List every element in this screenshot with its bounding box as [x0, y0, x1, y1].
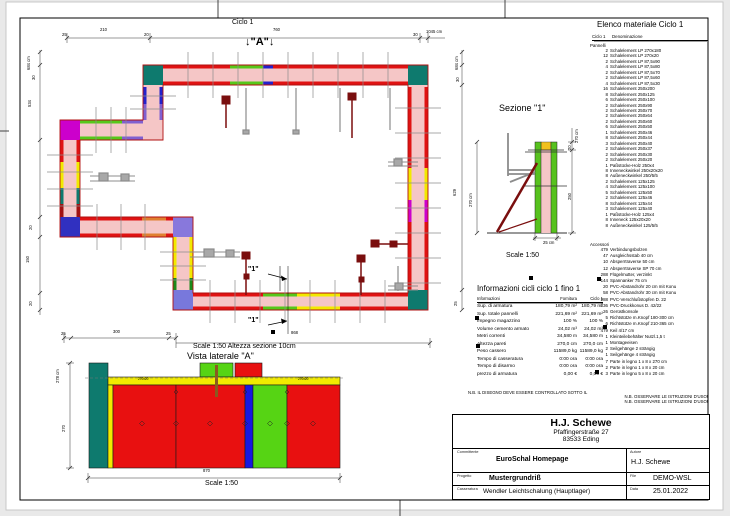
- field-label-formwork: Casseratura: [457, 487, 478, 491]
- info-row: Impegno magazzino100 %100 %: [477, 318, 603, 326]
- dim-label: 534: [28, 100, 32, 107]
- title-block-company: H.J. Schewe Pfaffingerstraße 27 83533 Ed…: [453, 415, 709, 449]
- dim-label: 868: [291, 331, 298, 335]
- field-label-project: Progetto: [457, 474, 471, 478]
- info-row: Peso cassero11589,0 kg11589,0 kg: [477, 348, 603, 356]
- section-scale: Scale 1:50: [506, 252, 539, 259]
- section-marker-a: ↓"A"↓: [245, 37, 274, 49]
- field-value-file: DEMO-WSL: [653, 475, 692, 482]
- dim-label: 20: [568, 145, 572, 150]
- dim-label: 30: [32, 75, 36, 80]
- info-row: prezzo di armatura0,00 €0,00 €: [477, 371, 603, 379]
- dim-label: 278 cm: [56, 369, 60, 383]
- company-address-street: Pfaffingerstraße 27: [453, 429, 709, 436]
- note-line: N.B. IL DISEGNO DEVE ESSERE CONTROLLATO …: [468, 390, 587, 395]
- cycle-info-table: Informazioni cicli ciclo 1 fino 1 Inform…: [477, 284, 603, 378]
- dim-label: 250: [568, 193, 572, 200]
- dim-label: 150: [26, 256, 30, 263]
- dim-label: 629: [453, 189, 457, 196]
- side-view-title: Vista laterale "A": [187, 352, 254, 361]
- dim-label: 684 cm: [27, 56, 31, 70]
- dim-label: 270 cm: [575, 129, 579, 143]
- info-row: Altezza pareti270,0 cm270,0 cm: [477, 341, 603, 349]
- dim-label: 25: [166, 332, 171, 336]
- dim-label: 25 cm: [543, 241, 554, 245]
- dim-label: 300: [113, 330, 120, 334]
- dim-label: 25: [62, 33, 67, 37]
- side-view-subtitle: Scale 1:50 Altezza sezione 10cm: [193, 343, 296, 350]
- dim-label: 30: [413, 33, 418, 37]
- field-value-formwork: Wendler Leichtschalung (Hauptlager): [483, 488, 590, 495]
- material-item: 8Außeneckwinkel 125/5/5: [592, 223, 708, 228]
- field-value-client: EuroSchal Homepage: [496, 456, 568, 463]
- field-value-date: 25.01.2022: [653, 488, 688, 495]
- note-line: N.B. OSSERVARE LE ISTRUZIONI D'USO!: [624, 399, 708, 404]
- info-row: Tempo di casseratura0:00 ora0:00 ora: [477, 356, 603, 364]
- material-list-title: Elenco materiale Ciclo 1: [597, 21, 683, 29]
- drawing-sheet: Ciclo 1 ↓"A"↓ "1" "1" 25 210 20 760 30 1…: [0, 0, 730, 516]
- dim-label: 210: [100, 28, 107, 32]
- panel-label: 270x20: [298, 378, 308, 381]
- info-row: Sup. di armatura180,79 m²180,79 m²: [477, 303, 603, 311]
- material-list: Ciclo 1Denominazione Pannelli 2Schalelem…: [592, 34, 708, 377]
- field-value-author: H.J. Schewe: [631, 459, 670, 466]
- material-item: 3Parte in legno 5 x 8 x 20 cm: [592, 371, 708, 377]
- dim-label: 684 cm: [455, 56, 459, 70]
- title-block: H.J. Schewe Pfaffingerstraße 27 83533 Ed…: [452, 414, 710, 500]
- side-view-scale: Scale 1:50: [205, 480, 238, 487]
- dim-label: 20: [144, 33, 149, 37]
- info-table-title: Informazioni cicli ciclo 1 fino 1: [477, 284, 603, 293]
- dim-label: 270: [62, 425, 66, 432]
- field-label-author: Autore: [630, 450, 641, 454]
- panel-label: 270x20: [138, 378, 148, 381]
- dim-label: 270 cm: [469, 193, 473, 207]
- company-name: H.J. Schewe: [453, 417, 709, 429]
- field-label-file: File: [630, 474, 636, 478]
- dim-label: 870: [203, 469, 210, 473]
- field-label-date: Data: [630, 487, 638, 491]
- section-marker-1-bottom: "1": [248, 317, 259, 324]
- info-row: Metri correnti34,580 m34,580 m: [477, 333, 603, 341]
- dim-label: 30: [456, 77, 460, 82]
- dim-label: 20: [29, 225, 33, 230]
- section-title: Sezione "1": [499, 104, 545, 113]
- company-address-city: 83533 Eding: [453, 436, 709, 443]
- dim-label: 25: [454, 301, 458, 306]
- dim-label: 20: [29, 301, 33, 306]
- plan-title: Ciclo 1: [232, 19, 253, 26]
- info-row: Volume cemento armato24,02 m³24,02 m³: [477, 326, 603, 334]
- info-table-header: Informazioni Fornitura Ciclo 1: [477, 296, 603, 303]
- dim-label: 1045 cm: [426, 30, 442, 34]
- info-row: Tempo di disarmo0:00 ora0:00 ora: [477, 363, 603, 371]
- material-list-header: Ciclo 1Denominazione: [592, 34, 708, 41]
- info-row: Sup. totale pannelli221,69 m²221,69 m²: [477, 311, 603, 319]
- field-label-client: Committente: [457, 450, 479, 454]
- dim-label: 25: [61, 332, 66, 336]
- field-value-project: Mustergrundriß: [489, 475, 541, 482]
- dim-label: 760: [273, 28, 280, 32]
- section-marker-1-top: "1": [248, 266, 259, 273]
